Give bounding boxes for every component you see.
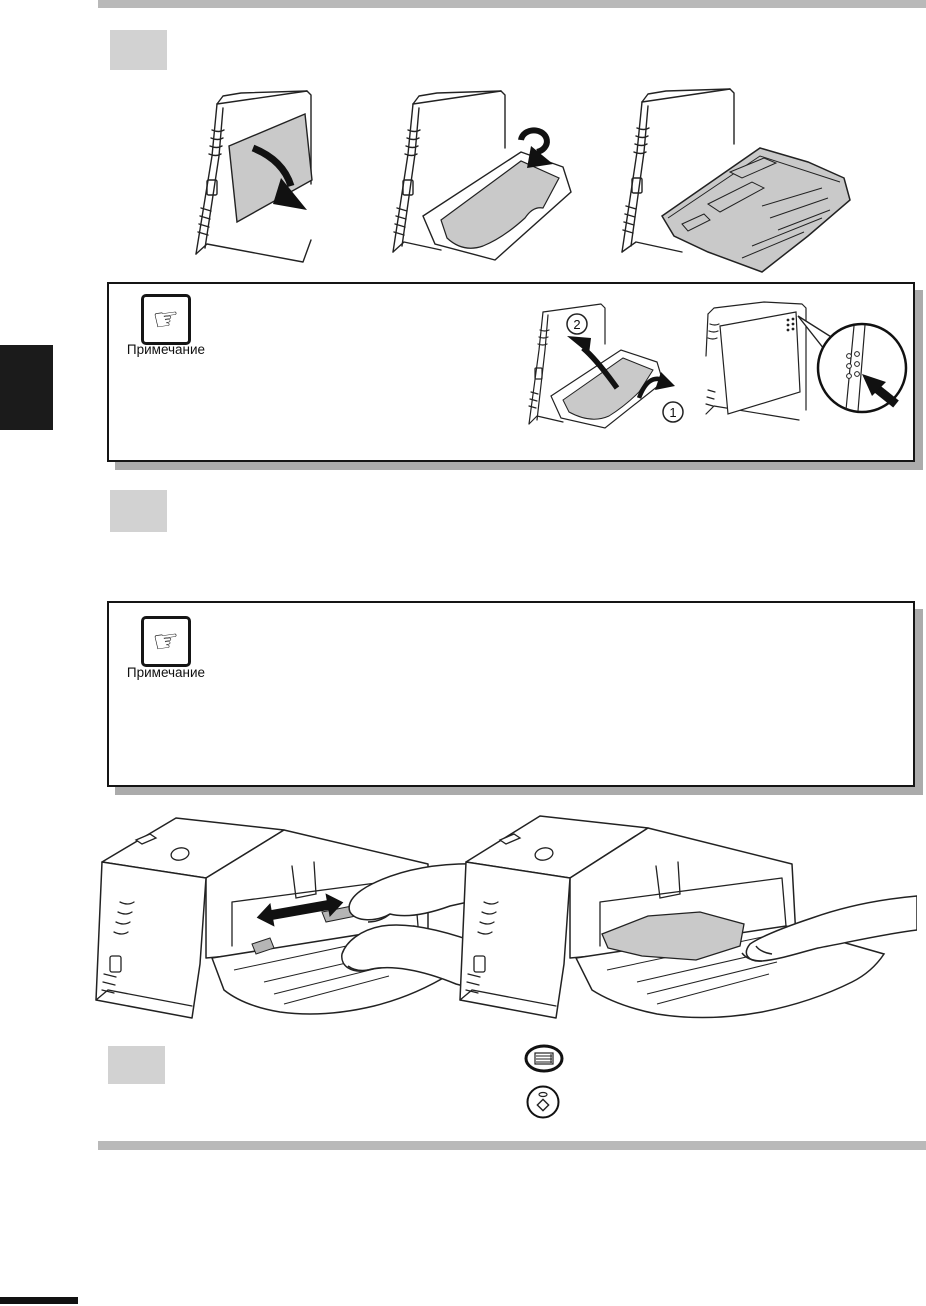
start-button-icon bbox=[526, 1085, 560, 1119]
step-1-box bbox=[110, 30, 167, 70]
figure-adjust-guides bbox=[84, 806, 486, 1028]
figure-close-tray: 2 1 bbox=[521, 300, 711, 452]
pointing-hand-glyph: ☞ bbox=[151, 303, 182, 336]
pointing-hand-icon: ☞ bbox=[141, 616, 191, 667]
pointing-hand-icon: ☞ bbox=[141, 294, 191, 345]
step-2-box bbox=[110, 490, 167, 532]
figure-press-cover-callout bbox=[704, 294, 912, 446]
note-label: Примечание bbox=[111, 665, 221, 680]
fold-step-1-marker: 1 bbox=[669, 405, 676, 420]
figure-tray-extended bbox=[612, 86, 862, 278]
chapter-tab bbox=[0, 345, 53, 430]
note-box-2: ☞ Примечание bbox=[107, 601, 915, 787]
multicopy-quantity-button-icon bbox=[524, 1044, 564, 1073]
pointing-hand-glyph: ☞ bbox=[151, 625, 182, 658]
figure-open-bypass-cover bbox=[183, 88, 335, 270]
figure-fold-out-tray bbox=[383, 88, 588, 273]
note-box-1: ☞ Примечание 2 1 bbox=[107, 282, 915, 462]
step-3-box bbox=[108, 1046, 165, 1084]
top-rule bbox=[98, 0, 926, 8]
manual-page: ☞ Примечание 2 1 bbox=[0, 0, 926, 1306]
bottom-rule bbox=[98, 1141, 926, 1150]
footer-line bbox=[0, 1297, 78, 1304]
figure-insert-paper bbox=[452, 804, 917, 1036]
note-label: Примечание bbox=[111, 342, 221, 357]
fold-step-2-marker: 2 bbox=[573, 317, 580, 332]
